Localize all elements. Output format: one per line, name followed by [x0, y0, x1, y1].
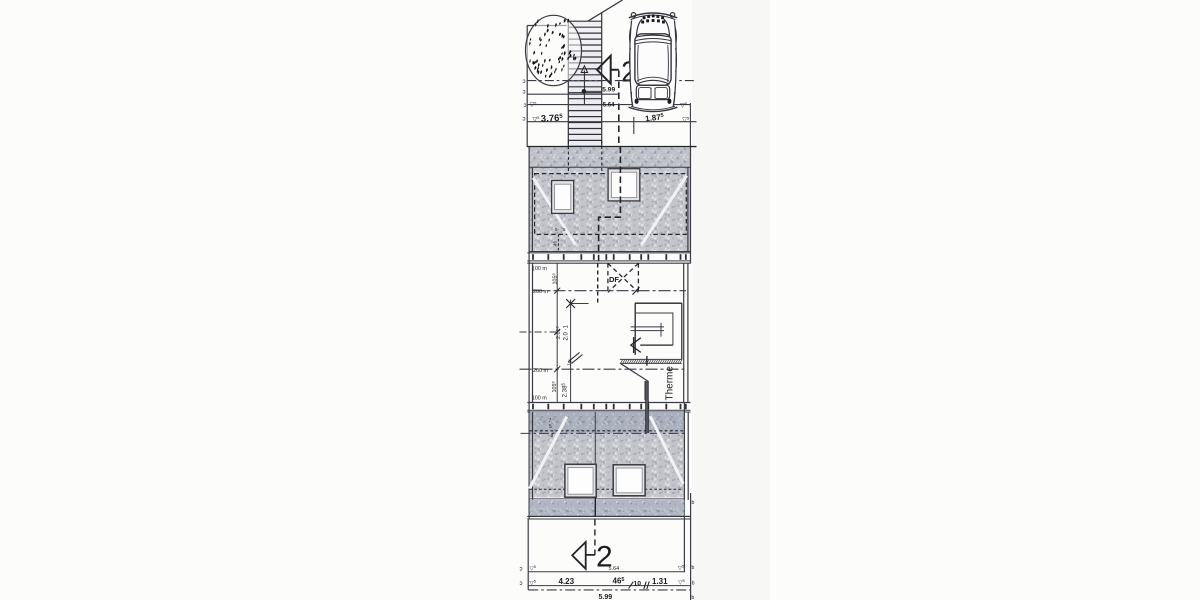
svg-text:ɔ: ɔ: [523, 117, 526, 123]
svg-text:10: 10: [634, 580, 642, 587]
svg-text:b: b: [692, 581, 695, 587]
svg-text:b: b: [692, 565, 695, 571]
svg-text:ɔ: ɔ: [520, 581, 523, 587]
svg-text:5.64: 5.64: [609, 566, 620, 572]
svg-text:200 m: 200 m: [533, 289, 548, 295]
svg-text:4.23: 4.23: [559, 577, 575, 586]
svg-text:45: 45: [553, 240, 558, 246]
svg-text:100 m: 100 m: [532, 395, 547, 401]
svg-text:ɔ: ɔ: [520, 567, 523, 573]
svg-text:b: b: [692, 500, 695, 506]
svg-text:⌊00 m: ⌊00 m: [533, 266, 548, 272]
svg-text:b: b: [692, 595, 695, 600]
svg-text:8: 8: [551, 433, 554, 439]
svg-text:Therme: Therme: [665, 366, 676, 401]
svg-text:DF: DF: [609, 275, 619, 284]
svg-text:5: 5: [549, 424, 552, 430]
svg-text:200 m: 200 m: [533, 368, 548, 374]
svg-text:1.31: 1.31: [652, 577, 668, 586]
svg-text:5.99: 5.99: [599, 594, 613, 600]
svg-text:5· ˇ5: 5· ˇ5: [555, 227, 566, 232]
svg-text:2.0 ·1: 2.0 ·1: [563, 324, 569, 340]
svg-text:5.64: 5.64: [603, 103, 615, 109]
svg-text:5.99: 5.99: [602, 87, 615, 94]
svg-text:ɔ: ɔ: [523, 90, 526, 96]
svg-text:ɔ: ɔ: [523, 79, 526, 85]
svg-text:ɔ: ɔ: [524, 103, 527, 109]
